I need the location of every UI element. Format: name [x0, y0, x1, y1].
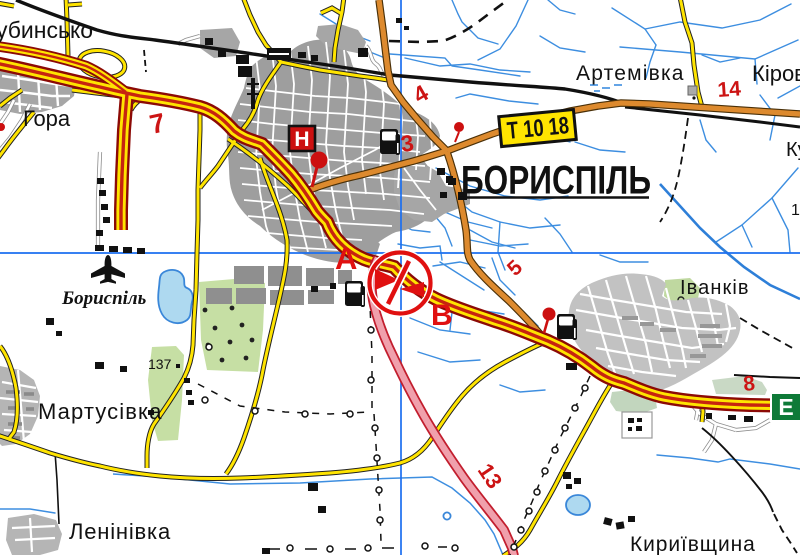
- svg-text:Артемівка: Артемівка: [576, 62, 685, 85]
- svg-text:Кириївщина: Кириївщина: [630, 533, 756, 555]
- svg-text:БОРИСПІЛЬ: БОРИСПІЛЬ: [461, 159, 651, 203]
- svg-text:Ку: Ку: [786, 139, 800, 161]
- svg-text:Е: Е: [778, 394, 793, 420]
- svg-text:Кіровське: Кіровське: [752, 61, 800, 86]
- svg-text:А: А: [335, 241, 357, 276]
- svg-text:Н: Н: [294, 128, 309, 151]
- svg-text:Бориспіль: Бориспіль: [61, 288, 147, 309]
- svg-text:убинсько: убинсько: [0, 17, 93, 43]
- svg-text:Ленінівка: Ленінівка: [69, 519, 171, 544]
- svg-text:137: 137: [148, 356, 172, 372]
- svg-text:1: 1: [791, 202, 800, 219]
- svg-text:Гора: Гора: [23, 106, 71, 131]
- svg-text:В: В: [431, 299, 453, 332]
- svg-text:14: 14: [717, 77, 742, 102]
- svg-text:Мартусівка: Мартусівка: [38, 399, 163, 424]
- svg-text:Іванків: Іванків: [680, 277, 750, 299]
